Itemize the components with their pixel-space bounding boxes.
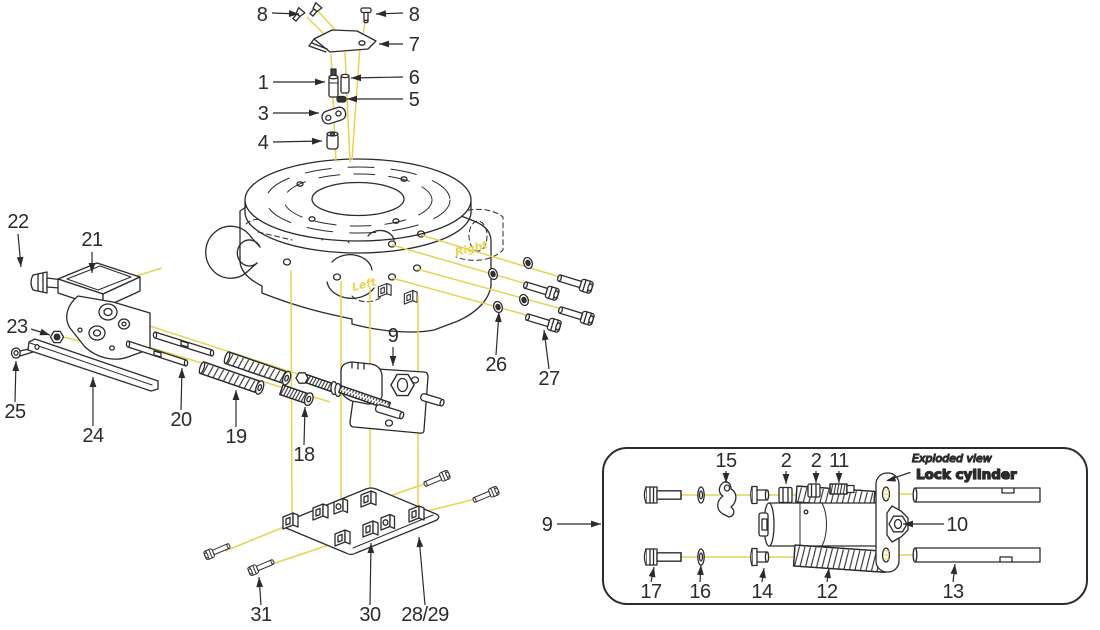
part-1-pin	[329, 69, 338, 97]
svg-text:4: 4	[258, 132, 269, 154]
part-4-spacer	[327, 132, 338, 149]
svg-text:20: 20	[170, 409, 192, 431]
part-label-22: 22	[7, 211, 29, 267]
svg-text:16: 16	[689, 581, 711, 603]
part-label-8: 8	[376, 4, 420, 26]
svg-text:15: 15	[715, 450, 737, 472]
svg-text:19: 19	[225, 426, 247, 448]
part-label-1: 1	[258, 72, 325, 94]
svg-text:7: 7	[409, 34, 420, 56]
part-label-18: 18	[293, 407, 315, 466]
svg-text:10: 10	[946, 514, 968, 536]
part-2-nuts	[779, 488, 792, 503]
svg-text:6: 6	[409, 67, 420, 89]
svg-text:27: 27	[538, 368, 560, 390]
svg-text:1: 1	[258, 72, 269, 94]
part-7-cover-plate	[309, 30, 376, 52]
svg-text:18: 18	[293, 444, 315, 466]
part-23-nut	[51, 331, 64, 342]
svg-text:8: 8	[257, 4, 268, 26]
svg-text:31: 31	[250, 604, 272, 626]
part-label-9: 9	[388, 325, 399, 366]
part-label-27: 27	[538, 330, 560, 390]
part-18-spring	[279, 384, 314, 407]
svg-text:9: 9	[388, 325, 399, 347]
part-label-30: 30	[359, 543, 381, 626]
part-label-19: 19	[225, 390, 247, 448]
svg-text:28/29: 28/29	[401, 604, 449, 626]
part-label-6: 6	[351, 67, 420, 89]
svg-text:21: 21	[81, 229, 103, 251]
svg-text:2: 2	[781, 450, 792, 472]
part-label-24: 24	[82, 377, 104, 447]
part-label-7: 7	[379, 34, 420, 56]
svg-text:14: 14	[751, 581, 773, 603]
inset-subtitle: Lock cylinder	[916, 467, 1017, 483]
part-8-screws	[291, 3, 371, 23]
part-5-pin	[337, 97, 346, 103]
part-label-26: 26	[485, 312, 507, 376]
exploded-parts-diagram: Right Left	[0, 0, 1100, 630]
svg-text:24: 24	[82, 425, 104, 447]
svg-text:30: 30	[359, 604, 381, 626]
inset-title: Exploded view	[912, 452, 992, 465]
part-label-8: 8	[257, 4, 299, 26]
svg-text:17: 17	[640, 581, 662, 603]
diagram-canvas: Right Left	[0, 0, 1100, 630]
part-3-link	[320, 106, 347, 126]
part-label-5: 5	[347, 89, 420, 111]
part-label-28-29: 28/29	[401, 537, 449, 626]
part-27-screws	[522, 272, 595, 333]
part-label-23: 23	[6, 316, 50, 338]
svg-text:23: 23	[6, 316, 28, 338]
part-9-lock-assembly	[296, 362, 445, 433]
svg-text:11: 11	[829, 450, 849, 472]
svg-text:12: 12	[816, 581, 838, 603]
part-label-31: 31	[250, 577, 272, 626]
part-label-20: 20	[170, 368, 192, 431]
svg-text:3: 3	[258, 103, 269, 125]
svg-text:8: 8	[409, 4, 420, 26]
svg-text:25: 25	[4, 401, 26, 423]
part-19-springs	[198, 350, 292, 395]
svg-text:26: 26	[485, 354, 507, 376]
part-label-9: 9	[542, 514, 601, 536]
svg-text:2: 2	[811, 450, 822, 472]
svg-text:5: 5	[409, 89, 420, 111]
svg-text:9: 9	[542, 514, 553, 536]
part-label-25: 25	[4, 361, 26, 423]
part-label-3: 3	[258, 103, 319, 125]
svg-text:22: 22	[7, 211, 29, 233]
part-28-29-base-plate	[283, 488, 439, 555]
svg-text:13: 13	[942, 581, 964, 603]
part-label-4: 4	[258, 132, 322, 154]
part-6-bushing	[341, 74, 349, 93]
